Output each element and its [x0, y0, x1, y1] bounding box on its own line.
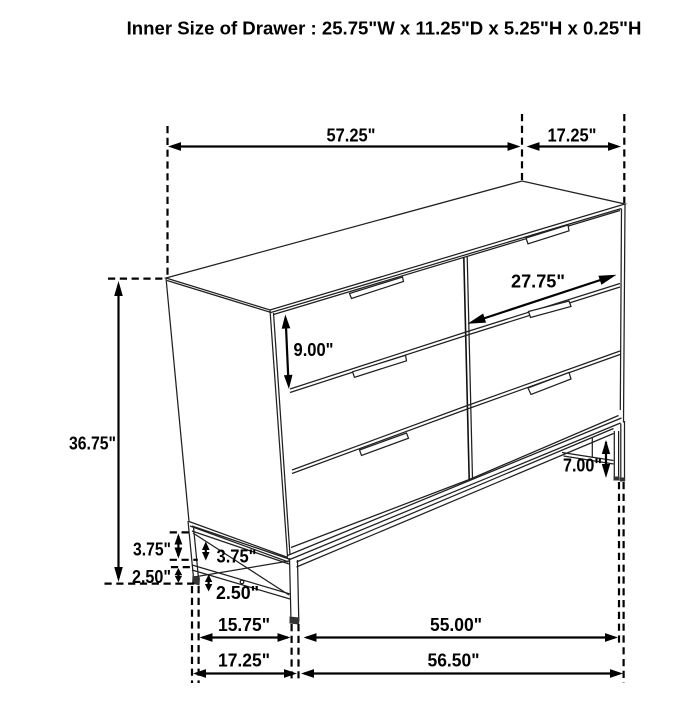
svg-text:Inner Size of Drawer : 25.75"W: Inner Size of Drawer : 25.75"W x 11.25"D… [127, 18, 642, 39]
svg-text:15.75": 15.75" [218, 614, 270, 635]
svg-text:3.75": 3.75" [217, 546, 257, 567]
svg-text:55.00": 55.00" [430, 614, 482, 635]
svg-text:17.25": 17.25" [218, 650, 270, 671]
svg-text:3.75": 3.75" [133, 539, 171, 560]
svg-text:17.25": 17.25" [548, 125, 597, 146]
svg-text:56.50": 56.50" [428, 650, 480, 671]
svg-text:2.50": 2.50" [132, 566, 171, 587]
svg-text:36.75": 36.75" [69, 433, 116, 454]
svg-text:57.25": 57.25" [327, 125, 376, 146]
svg-text:27.75": 27.75" [511, 271, 565, 292]
svg-text:9.00": 9.00" [294, 339, 334, 360]
svg-text:2.50": 2.50" [216, 582, 259, 603]
svg-text:7.00": 7.00" [563, 455, 602, 476]
